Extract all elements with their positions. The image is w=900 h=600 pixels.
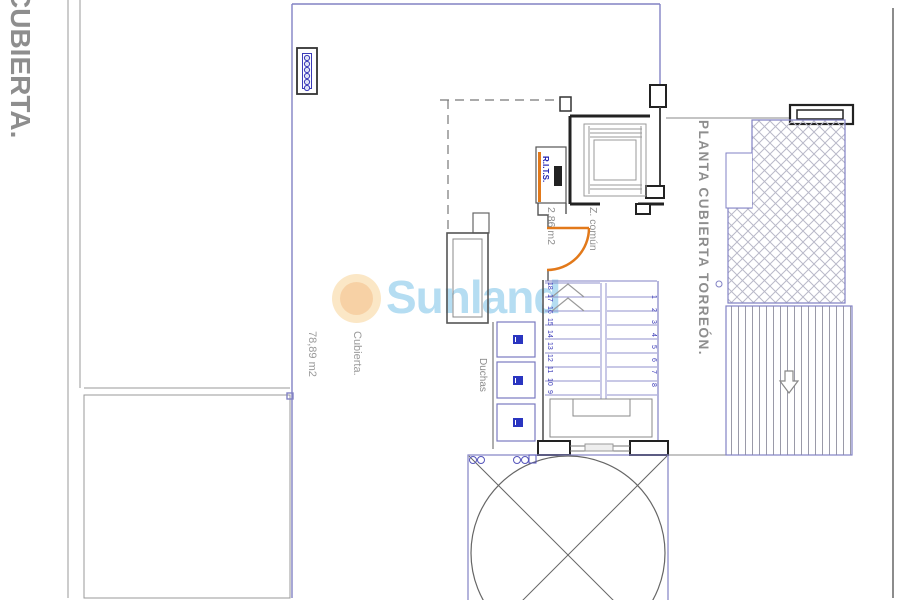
- shower-stalls: [493, 322, 535, 449]
- plan-linework: [0, 0, 900, 600]
- cubierta-label: Cubierta. 78,89 m2: [360, 331, 394, 415]
- stair-number: 9: [544, 390, 554, 403]
- chimney-shaft: [447, 233, 488, 323]
- terrace-hatched: [716, 120, 845, 303]
- pool-dome-area: [468, 455, 726, 600]
- stair-number: 1: [648, 295, 658, 308]
- elevator: [560, 85, 666, 204]
- stair-number: 8: [648, 383, 658, 396]
- roof-post: [473, 213, 489, 233]
- terrace-striped: [726, 306, 852, 455]
- stair-number: 3: [648, 320, 658, 333]
- stair-number: 7: [648, 370, 658, 383]
- plan-title-right: PLANTA CUBIERTA TORREÓN.: [696, 120, 711, 380]
- vent-grille-icon: [297, 48, 317, 94]
- duchas-label: Duchas: [477, 358, 488, 408]
- property-boundary-lines: [68, 0, 290, 598]
- rits-label: R.I.T.S.: [541, 156, 550, 200]
- z-comun-label: Z. común 2,86 m2: [596, 207, 628, 285]
- floor-plan-canvas: Sunland: [0, 0, 900, 600]
- stair-number: 5: [648, 345, 658, 358]
- plan-title-left: CUBIERTA.: [4, 0, 36, 208]
- roof-outline: [287, 4, 660, 598]
